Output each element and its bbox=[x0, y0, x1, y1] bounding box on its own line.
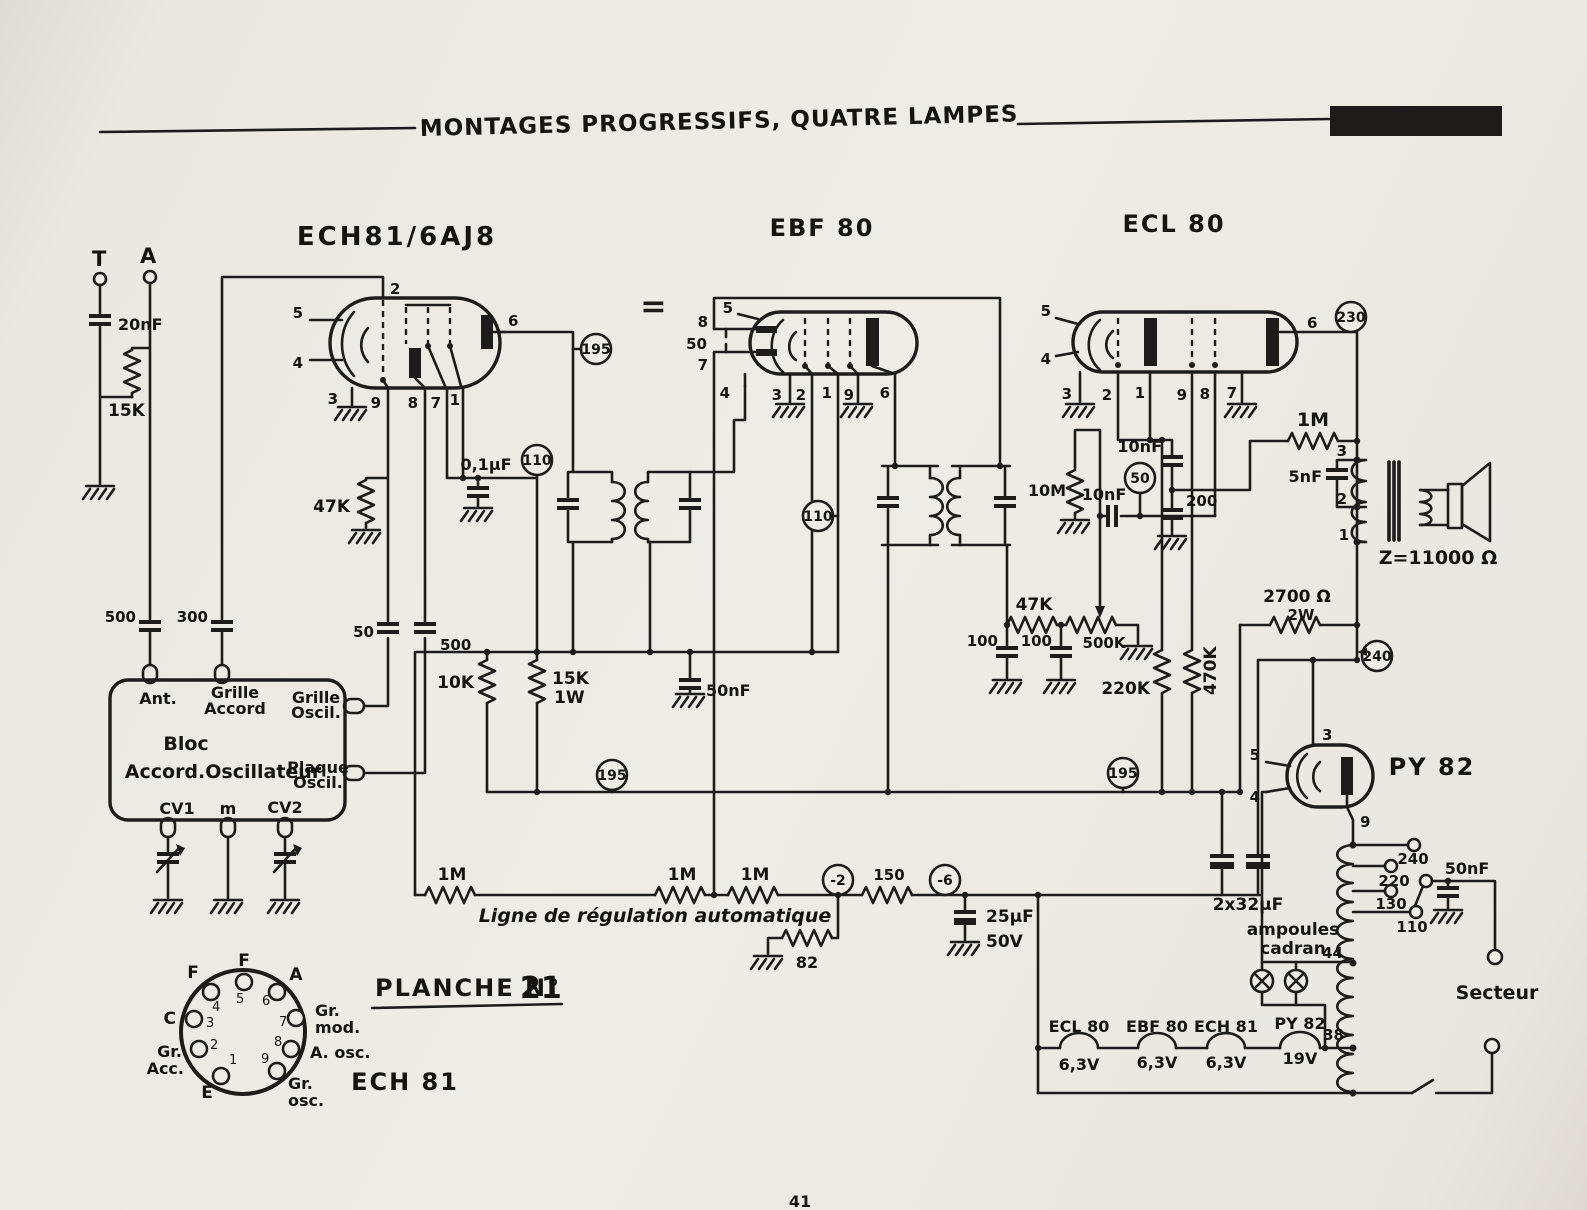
resistor-1m-2 bbox=[655, 887, 705, 903]
capacitor-50nf-if-label: 50nF bbox=[706, 681, 751, 700]
dial-lamp-2 bbox=[1285, 970, 1307, 992]
pin1: 1 bbox=[822, 384, 832, 402]
socket-pin2: 2 bbox=[210, 1038, 218, 1053]
tube-py82-power: PY 82 3 5 4 9 240 220 130 110 50nF Secte… bbox=[1035, 660, 1539, 1097]
planche-number: 21 bbox=[520, 971, 562, 1006]
pin4: 4 bbox=[293, 354, 303, 372]
capacitor-50-diode-label: 50 bbox=[686, 335, 707, 353]
dial-lamp-1 bbox=[1251, 970, 1273, 992]
bloc-grille-accord-2: Accord bbox=[204, 699, 266, 718]
capacitor-50-osc-label: 50 bbox=[353, 623, 374, 641]
socket-pin8: 8 bbox=[274, 1035, 282, 1050]
capacitor-100-2-label: 100 bbox=[1021, 632, 1052, 650]
if2-detector-volume: 47K 500K 100 100 10M 10nF 50 bbox=[877, 430, 1215, 792]
secteur-terminal-2 bbox=[1485, 1039, 1499, 1053]
resistor-1m-3-label: 1M bbox=[741, 865, 770, 885]
resistor-47k-label: 47K bbox=[313, 497, 351, 517]
pin9: 9 bbox=[844, 386, 854, 404]
lamps-label-2: cadran bbox=[1260, 939, 1326, 959]
socket-pin5: 5 bbox=[236, 992, 244, 1007]
resistor-1m-2-label: 1M bbox=[668, 865, 697, 885]
heater-ech81-voltage: 6,3V bbox=[1206, 1053, 1247, 1072]
tube-py82-envelope bbox=[1287, 745, 1373, 807]
capacitor-5nf-label: 5nF bbox=[1289, 467, 1322, 486]
pin9: 9 bbox=[1177, 386, 1187, 404]
tube-ebf80-title: EBF 80 bbox=[770, 214, 875, 242]
header-black-block bbox=[1330, 106, 1502, 136]
testpoint-195-top-value: 195 bbox=[581, 342, 610, 358]
bloc-plaque-oscil-2: Oscil. bbox=[293, 773, 343, 792]
autotransformer-coil bbox=[1337, 845, 1353, 1092]
tap-110-terminal bbox=[1410, 906, 1422, 918]
socket-pin3: 3 bbox=[206, 1016, 214, 1031]
capacitor-500-osc bbox=[414, 624, 436, 632]
resistor-2700-label: 2700 Ω bbox=[1263, 587, 1331, 607]
bloc-cv2-label: CV2 bbox=[267, 798, 302, 817]
capacitor-10nf-af bbox=[1108, 505, 1116, 527]
lamps-label-1: ampoules bbox=[1247, 920, 1340, 940]
pin4: 4 bbox=[720, 384, 730, 402]
pin2: 2 bbox=[1102, 386, 1112, 404]
capacitor-25uf-label: 25µF bbox=[986, 907, 1034, 927]
secteur-terminal-1 bbox=[1488, 950, 1502, 964]
socket-label-grosc-2: osc. bbox=[288, 1091, 324, 1110]
capacitor-10nf-2 bbox=[1161, 457, 1183, 465]
tube-py82-title: PY 82 bbox=[1389, 753, 1476, 781]
resistor-82-label: 82 bbox=[796, 953, 818, 972]
resistor-47k bbox=[358, 480, 374, 523]
output-primary-coil bbox=[1352, 460, 1366, 542]
capacitor-01uf-label: 0,1µF bbox=[460, 455, 511, 474]
tap-110-label: 110 bbox=[1396, 918, 1427, 936]
capacitor-100-1-label: 100 bbox=[967, 632, 998, 650]
heater-ecl80-voltage: 6,3V bbox=[1059, 1055, 1100, 1074]
pin4: 4 bbox=[1041, 350, 1051, 368]
pin2: 2 bbox=[796, 386, 806, 404]
heater-py82 bbox=[1280, 1032, 1320, 1048]
capacitor-50nf-mains-label: 50nF bbox=[1445, 859, 1490, 878]
trafo-tap-3: 3 bbox=[1337, 442, 1347, 460]
py82-anode bbox=[1341, 757, 1353, 795]
socket-label-gracc-2: Acc. bbox=[147, 1059, 184, 1078]
socket-label-a: A bbox=[289, 965, 303, 985]
filter-cap-label: 2x32µF bbox=[1213, 895, 1284, 915]
avc-line: 1M 1M 1M Ligne de régulation automatique… bbox=[415, 865, 1260, 972]
capacitor-10nf-af-label: 10nF bbox=[1082, 485, 1127, 504]
resistor-1m-3 bbox=[728, 887, 778, 903]
tube-ecl80-title: ECL 80 bbox=[1122, 210, 1225, 238]
if2-secondary-coil bbox=[947, 478, 960, 535]
pentode-anode bbox=[1266, 318, 1279, 366]
if1-secondary-coil bbox=[635, 482, 648, 539]
avc-line-label: Ligne de régulation automatique bbox=[479, 905, 832, 927]
trafo-tap-1: 1 bbox=[1339, 526, 1349, 544]
terminal-t-label: T bbox=[92, 247, 107, 271]
ech81-socket-diagram: 5 4 6 3 7 2 8 1 9 F F A C Gr. mod. Gr. A… bbox=[147, 951, 562, 1110]
resistor-15k-1w bbox=[529, 660, 545, 703]
capacitor-5nf bbox=[1326, 470, 1348, 478]
testpoint-195-right-value: 195 bbox=[1108, 766, 1137, 782]
pin6: 6 bbox=[1307, 314, 1317, 332]
testpoint-minus2-value: -2 bbox=[830, 873, 846, 889]
bloc-cv1-label: CV1 bbox=[159, 799, 194, 818]
resistor-220k-label: 220K bbox=[1101, 679, 1150, 699]
resistor-1m-grid bbox=[1288, 433, 1338, 449]
heater-py82-voltage: 19V bbox=[1283, 1049, 1318, 1068]
potentiometer-500k-label: 500K bbox=[1083, 634, 1127, 652]
capacitor-300-label: 300 bbox=[177, 608, 208, 626]
resistor-220k bbox=[1154, 650, 1170, 693]
tap-240-label: 240 bbox=[1397, 850, 1428, 868]
pin1: 1 bbox=[450, 391, 460, 409]
bloc-ant-label: Ant. bbox=[139, 689, 177, 708]
tap-38-label: 38 bbox=[1323, 1026, 1344, 1044]
resistor-47k-det bbox=[1007, 617, 1057, 633]
pin9: 9 bbox=[1360, 813, 1370, 831]
capacitor-500-label: 500 bbox=[105, 608, 136, 626]
bloc-m-label: m bbox=[220, 799, 237, 818]
pin7: 7 bbox=[1227, 384, 1237, 402]
heptode-anode bbox=[481, 315, 493, 349]
if1-primary-cap bbox=[557, 500, 579, 508]
resistor-1m-1 bbox=[425, 887, 475, 903]
resistor-2700-watt: 2W bbox=[1288, 606, 1315, 624]
cathode-arc bbox=[1089, 320, 1100, 370]
output-secondary-coil bbox=[1420, 490, 1431, 525]
terminal-a-label: A bbox=[140, 244, 157, 268]
pin7: 7 bbox=[698, 356, 708, 374]
voltage-selector-pivot[interactable] bbox=[1420, 875, 1432, 887]
resistor-10m bbox=[1067, 470, 1083, 513]
heater-ech81-label: ECH 81 bbox=[1194, 1017, 1258, 1036]
diode-plate-2 bbox=[756, 349, 777, 356]
socket-label-grmod-2: mod. bbox=[315, 1018, 360, 1037]
antenna-earth-section: T 20nF A 15K bbox=[83, 244, 163, 621]
header-rule-right bbox=[1018, 119, 1330, 124]
pin2: 2 bbox=[390, 280, 400, 298]
tap-130-label: 130 bbox=[1375, 895, 1406, 913]
resistor-82 bbox=[782, 930, 832, 946]
pin3: 3 bbox=[328, 390, 338, 408]
triode-anode bbox=[1144, 318, 1157, 366]
pin8: 8 bbox=[1200, 385, 1210, 403]
socket-pin4: 4 bbox=[212, 1000, 220, 1015]
mains-switch[interactable] bbox=[1412, 1080, 1433, 1093]
pin6: 6 bbox=[508, 312, 518, 330]
socket-label-aosc: A. osc. bbox=[310, 1043, 370, 1062]
heater-ebf80-label: EBF 80 bbox=[1126, 1017, 1188, 1036]
ground-earth bbox=[83, 486, 114, 499]
testpoint-110-2-value: 110 bbox=[803, 509, 832, 525]
triode-anode bbox=[409, 348, 421, 378]
tube-ebf80-envelope bbox=[750, 312, 917, 374]
resistor-150 bbox=[862, 887, 912, 903]
pin5: 5 bbox=[1041, 302, 1051, 320]
speaker-driver bbox=[1448, 484, 1462, 528]
resistor-15k-label: 15K bbox=[108, 401, 146, 421]
output-transformer-speaker: 3 2 1 5nF Z=11000 Ω 2700 Ω 2W 240 bbox=[1237, 438, 1497, 795]
tube-ech81: ECH81/6AJ8 5 4 2 3 9 8 7 1 6 47K 0,1µF 1… bbox=[222, 222, 611, 652]
terminal-t bbox=[94, 273, 106, 285]
heater-ebf80-voltage: 6,3V bbox=[1137, 1053, 1178, 1072]
tube-ech81-title: ECH81/6AJ8 bbox=[297, 222, 497, 252]
resistor-150-label: 150 bbox=[873, 866, 904, 884]
socket-pin6: 6 bbox=[262, 994, 270, 1009]
socket-label-c: C bbox=[164, 1009, 176, 1029]
cathode-arc-inner bbox=[361, 328, 368, 362]
pin3: 3 bbox=[1322, 726, 1332, 744]
capacitor-10nf-2-label: 10nF bbox=[1117, 437, 1162, 456]
resistor-15k-1w-watt: 1W bbox=[554, 688, 585, 708]
tap-220-terminal bbox=[1385, 860, 1397, 872]
page-title: MONTAGES PROGRESSIFS, QUATRE LAMPES bbox=[420, 101, 1019, 142]
cathode-arc bbox=[342, 312, 354, 376]
resistor-10k-label: 10K bbox=[437, 673, 475, 693]
if2-primary-coil bbox=[930, 478, 943, 535]
socket-pin9: 9 bbox=[261, 1052, 269, 1067]
if1-primary-coil bbox=[612, 482, 625, 539]
if2-secondary-cap bbox=[994, 498, 1016, 506]
resistor-15k bbox=[124, 350, 140, 393]
speaker-impedance-label: Z=11000 Ω bbox=[1379, 547, 1498, 569]
transformer-core bbox=[1389, 462, 1399, 540]
testpoint-230-value: 230 bbox=[1336, 310, 1365, 326]
socket-label-f1: F bbox=[238, 951, 250, 971]
bloc-grille-oscil-2: Oscil. bbox=[291, 703, 341, 722]
pin7: 7 bbox=[431, 394, 441, 412]
pin8: 8 bbox=[698, 313, 708, 331]
pin6: 6 bbox=[880, 384, 890, 402]
pin9: 9 bbox=[371, 394, 381, 412]
capacitor-50-osc bbox=[377, 624, 399, 632]
pin8: 8 bbox=[408, 394, 418, 412]
resistor-15k-1w-label: 15K bbox=[552, 669, 590, 689]
potentiometer-500k bbox=[1066, 617, 1116, 633]
schematic-page: MONTAGES PROGRESSIFS, QUATRE LAMPES T 20… bbox=[0, 0, 1587, 1210]
resistor-10m-label: 10M bbox=[1028, 481, 1066, 500]
socket-label-e: E bbox=[201, 1083, 213, 1103]
terminal-a bbox=[144, 271, 156, 283]
testpoint-50-value: 50 bbox=[1130, 471, 1150, 487]
heater-py82-label: PY 82 bbox=[1274, 1014, 1325, 1033]
schematic-drawing: MONTAGES PROGRESSIFS, QUATRE LAMPES T 20… bbox=[0, 0, 1587, 1210]
capacitor-200-label: 200 bbox=[1186, 492, 1217, 510]
resistor-470k-label: 470K bbox=[1201, 646, 1221, 695]
header-rule-left bbox=[100, 128, 415, 132]
socket-pin7: 7 bbox=[279, 1015, 287, 1030]
resistor-1m-grid-label: 1M bbox=[1297, 409, 1329, 431]
if1-secondary-cap bbox=[679, 500, 701, 508]
resistor-470k bbox=[1184, 650, 1200, 693]
socket-tube-name: ECH 81 bbox=[351, 1068, 459, 1096]
pin5: 5 bbox=[723, 299, 733, 317]
tap-44-label: 44 bbox=[1322, 944, 1343, 962]
speaker-cone bbox=[1462, 463, 1490, 541]
pin3: 3 bbox=[1062, 385, 1072, 403]
capacitor-50-diode bbox=[644, 303, 664, 310]
capacitor-20nf-label: 20nF bbox=[118, 315, 163, 334]
socket-label-f2: F bbox=[187, 963, 199, 983]
resistor-10k bbox=[479, 660, 495, 703]
socket-pin1: 1 bbox=[229, 1053, 237, 1068]
bloc-name-1: Bloc bbox=[163, 733, 208, 755]
bloc-accord-oscillateur: 500 300 Ant. Grille Accord Grille Oscil.… bbox=[105, 608, 472, 913]
pin3: 3 bbox=[772, 386, 782, 404]
if2-primary-cap bbox=[877, 498, 899, 506]
resistor-1m-1-label: 1M bbox=[438, 865, 467, 885]
testpoint-195-left-value: 195 bbox=[597, 768, 626, 784]
capacitor-25uf-voltage: 50V bbox=[986, 932, 1024, 952]
pin5: 5 bbox=[293, 304, 303, 322]
secteur-label: Secteur bbox=[1456, 982, 1539, 1004]
header: MONTAGES PROGRESSIFS, QUATRE LAMPES bbox=[100, 101, 1502, 142]
pin1: 1 bbox=[1135, 384, 1145, 402]
testpoint-minus6-value: -6 bbox=[937, 873, 953, 889]
voltage-selector-arm[interactable] bbox=[1415, 886, 1423, 906]
testpoint-110-1-value: 110 bbox=[522, 453, 551, 469]
pentode-anode bbox=[866, 318, 879, 366]
page-number: 41 bbox=[789, 1192, 811, 1210]
diode-plate-1 bbox=[756, 326, 777, 333]
resistor-47k-det-label: 47K bbox=[1016, 595, 1054, 615]
heater-ecl80-label: ECL 80 bbox=[1049, 1017, 1110, 1036]
